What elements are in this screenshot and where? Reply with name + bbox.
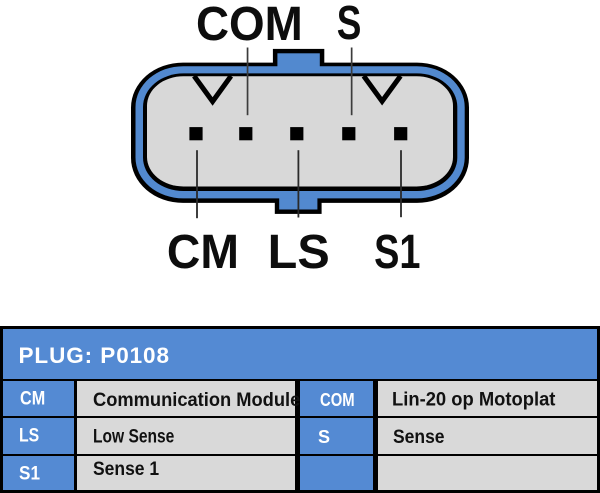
svg-text:CM: CM — [167, 225, 239, 279]
svg-text:LS: LS — [268, 225, 330, 279]
svg-text:COM: COM — [196, 0, 303, 50]
svg-text:S1: S1 — [374, 226, 420, 279]
svg-text:S: S — [337, 0, 362, 50]
